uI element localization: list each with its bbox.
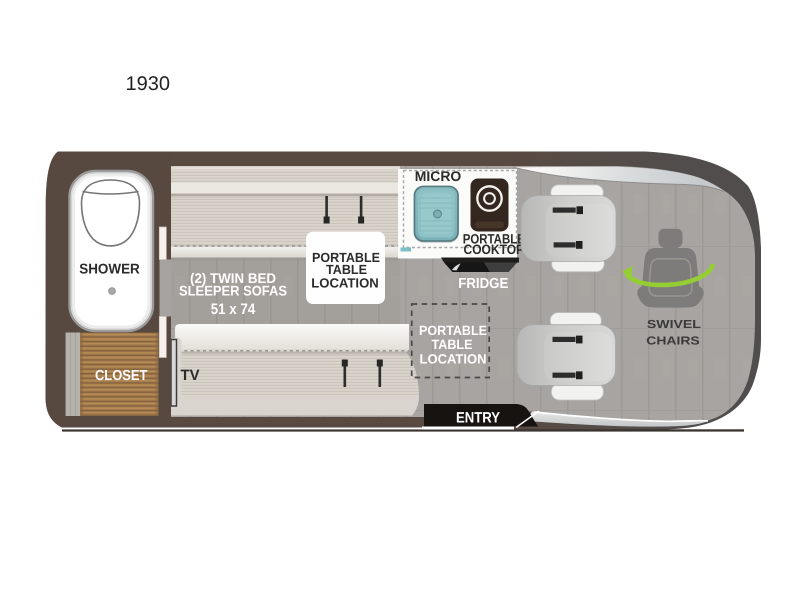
svg-text:LOCATION: LOCATION [311, 276, 379, 291]
svg-text:TV: TV [181, 367, 200, 384]
svg-text:CHAIRS: CHAIRS [646, 335, 700, 348]
svg-text:CLOSET: CLOSET [95, 368, 148, 384]
svg-text:ENTRY: ENTRY [456, 410, 500, 427]
svg-text:FRIDGE: FRIDGE [458, 276, 508, 292]
svg-text:SHOWER: SHOWER [79, 262, 140, 278]
svg-text:COOKTOP: COOKTOP [464, 242, 525, 257]
svg-text:SLEEPER SOFAS: SLEEPER SOFAS [179, 283, 287, 299]
svg-text:TABLE: TABLE [432, 337, 473, 352]
svg-text:SWIVEL: SWIVEL [647, 318, 701, 331]
svg-text:51 x 74: 51 x 74 [211, 301, 256, 318]
svg-text:PORTABLE: PORTABLE [419, 323, 487, 338]
svg-text:MICRO: MICRO [415, 168, 462, 184]
svg-text:LOCATION: LOCATION [420, 351, 487, 366]
svg-text:1930: 1930 [126, 73, 171, 95]
